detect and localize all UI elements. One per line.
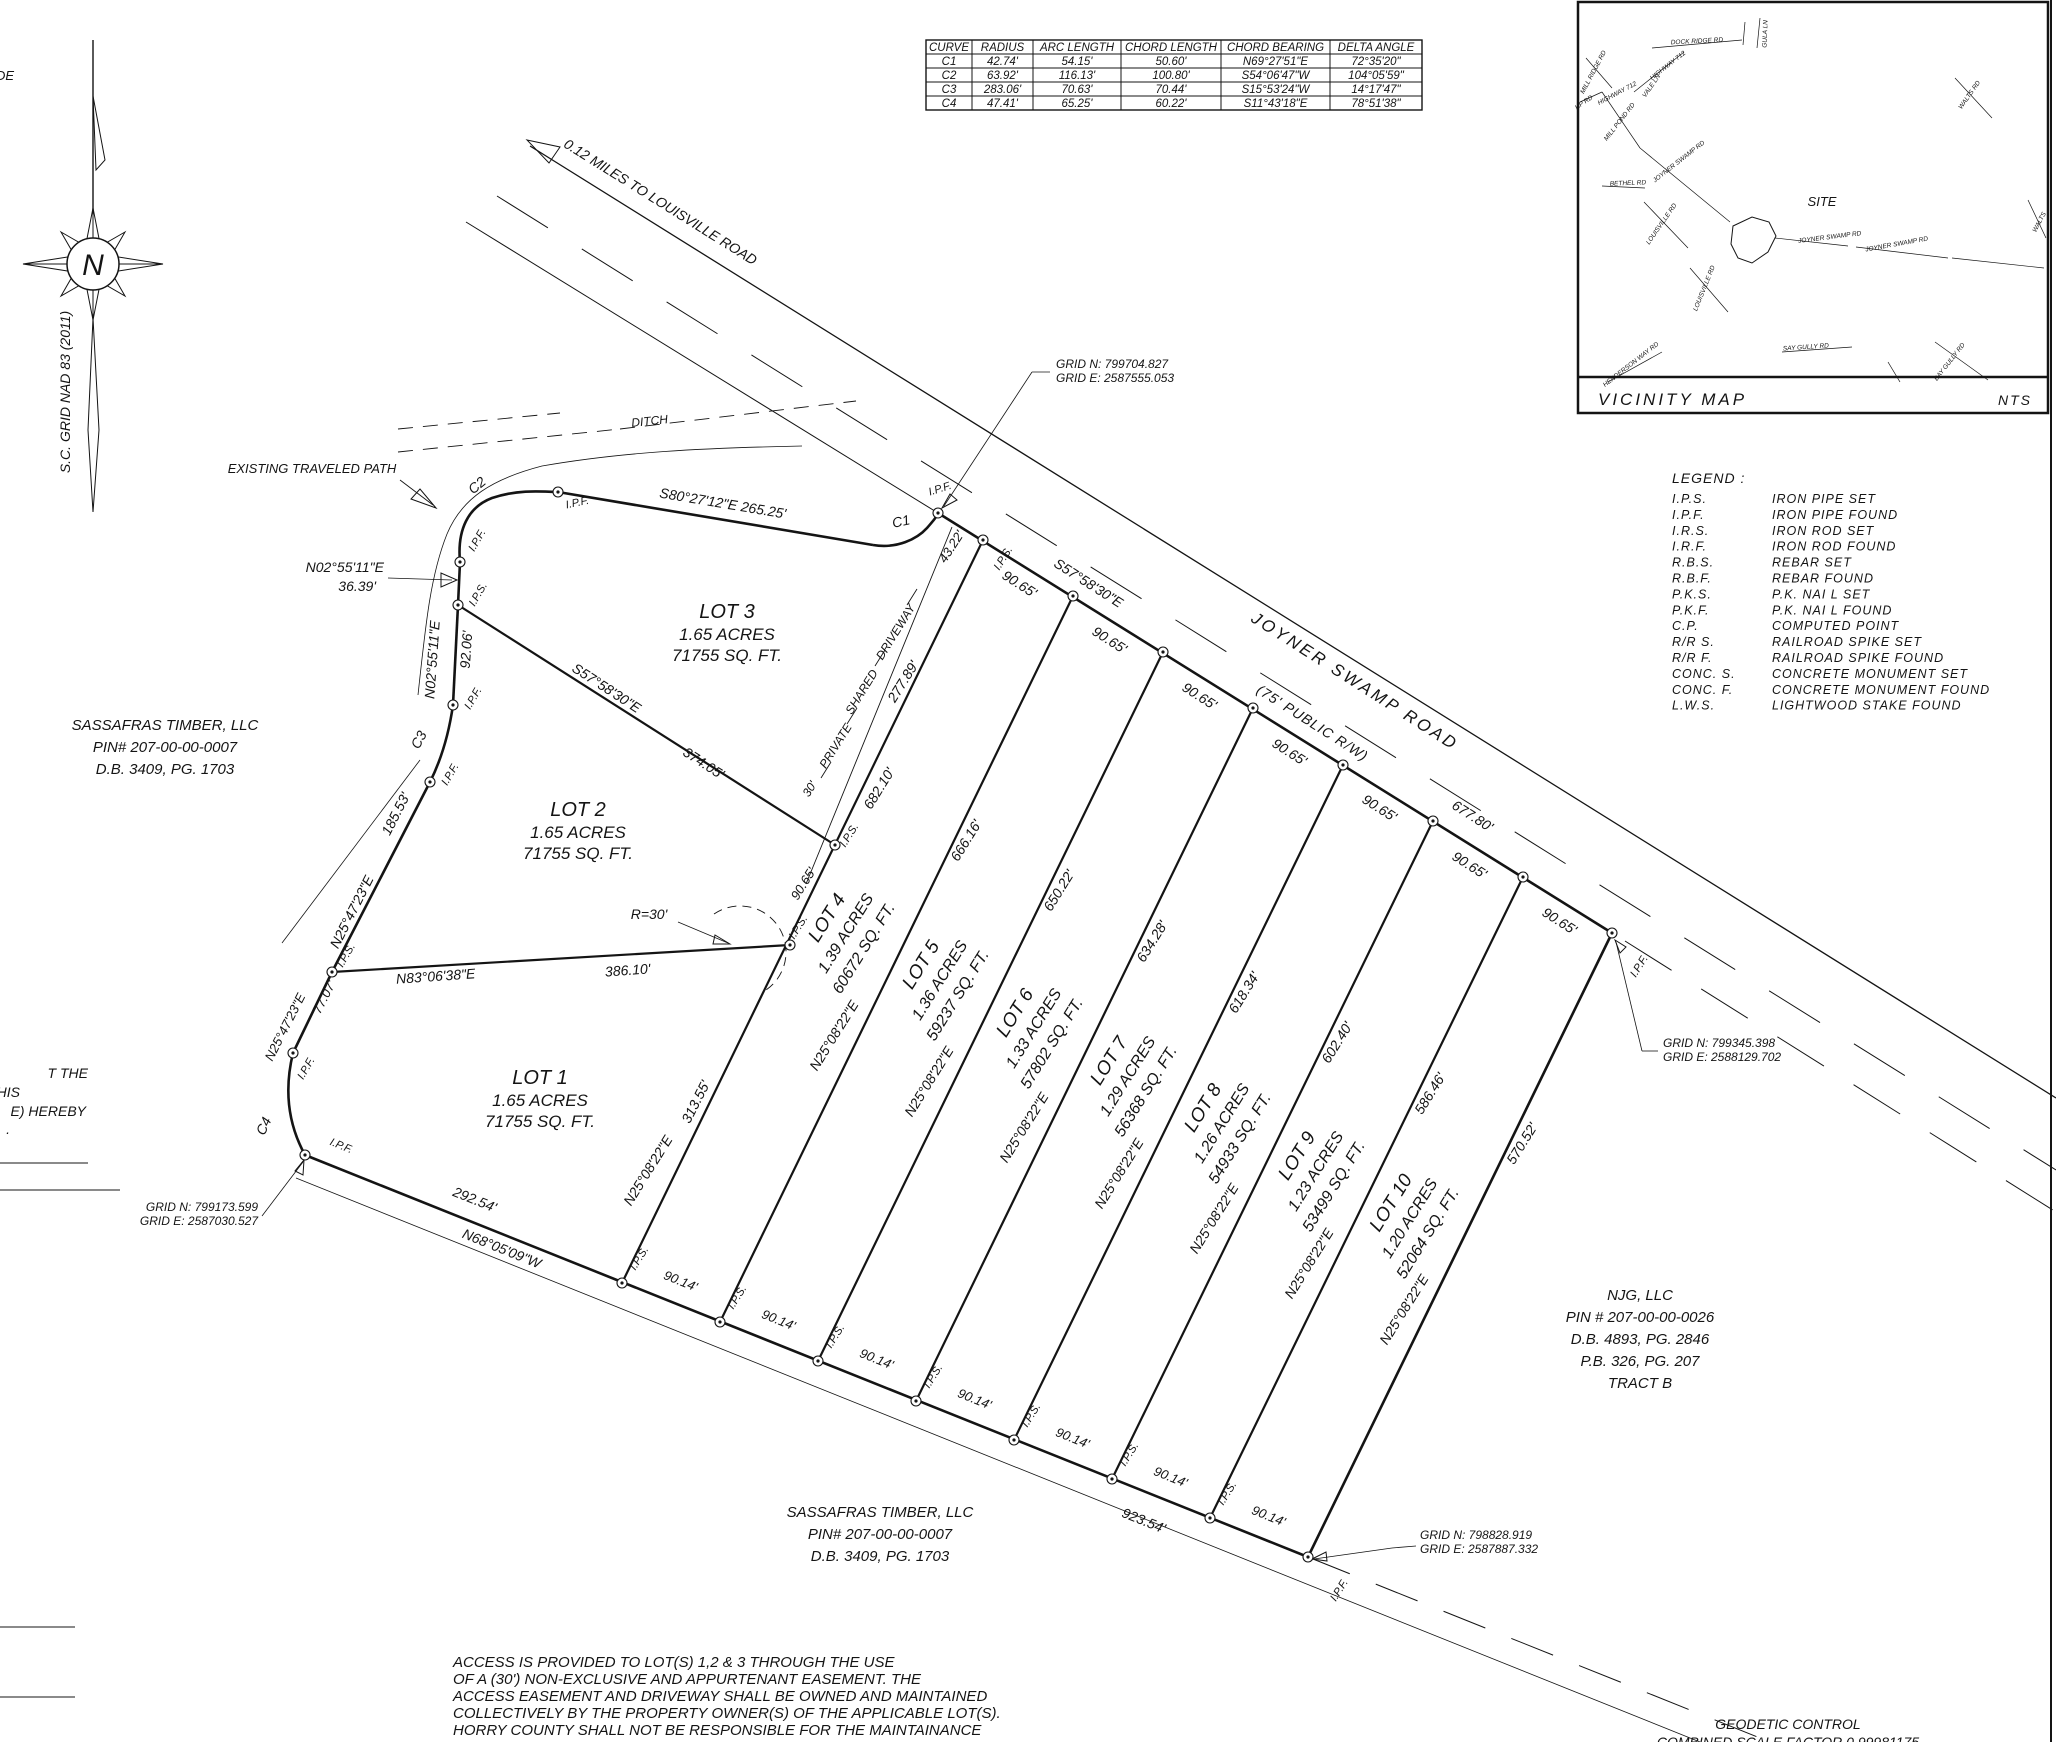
bearing-distance-label: 90.14' <box>1250 1502 1289 1529</box>
monument-marker-dot <box>303 1153 306 1156</box>
curve-table-header: RADIUS <box>981 42 1025 54</box>
bearing-distance-label: C4 <box>252 1114 274 1137</box>
bearing-distance-label: 0.12 MILES TO LOUISVILLE ROAD <box>561 135 760 268</box>
lot-label: 71755 SQ. FT. <box>672 646 782 665</box>
monument-marker-dot <box>330 970 333 973</box>
bearing-distance-label: 313.55' <box>678 1077 714 1126</box>
legend-desc: P.K. NAI L FOUND <box>1772 603 1892 617</box>
bearing-distance-label: C1 <box>891 511 912 530</box>
curve-table-cell: S11°43'18"E <box>1244 98 1308 110</box>
bearing-distance-label: S57°58'30"E <box>1051 555 1126 611</box>
curve-table-cell: C2 <box>942 70 957 82</box>
vicinity-road-label: GULA LN <box>1762 20 1770 48</box>
legend-desc: CONCRETE MONUMENT SET <box>1772 667 1968 681</box>
legend-desc: RAILROAD SPIKE FOUND <box>1772 651 1944 665</box>
plat-line <box>458 562 460 605</box>
grid-coordinate-label: GRID N: 798828.919 <box>1420 1528 1532 1542</box>
curve-table-cell: 14°17'47" <box>1351 84 1401 96</box>
bearing-distance-label: N02°55'11"E <box>306 559 385 575</box>
monument-marker-dot <box>914 1399 917 1402</box>
vicinity-map-title: VICINITY MAP <box>1598 390 1747 409</box>
bearing-distance-label: I.P.F. <box>466 527 488 553</box>
lot-label: LOT 3 <box>699 601 755 623</box>
plat-line <box>1308 1557 1770 1742</box>
legend-abbr: R.B.F. <box>1672 572 1712 586</box>
bearing-distance-label: S57°58'30"E <box>569 660 644 717</box>
legend-abbr: I.R.S. <box>1672 524 1709 538</box>
monument-marker-dot <box>1012 1438 1015 1441</box>
bearing-distance-label: JOYNER SWAMP ROAD <box>1247 608 1462 754</box>
curve-table-cell: 42.74' <box>987 56 1019 68</box>
monument-marker-dot <box>1610 931 1613 934</box>
note-text: HORRY COUNTY SHALL NOT BE RESPONSIBLE FO… <box>453 1722 982 1739</box>
bearing-distance-label: I.P.S. <box>922 1362 946 1390</box>
curve-table-cell: C4 <box>942 98 957 110</box>
bearing-distance-label: N25°08'22"E <box>1091 1135 1147 1211</box>
legend-desc: CONCRETE MONUMENT FOUND <box>1772 683 1990 697</box>
page: { "canvas": {"width": 2056, "height": 17… <box>0 0 2056 1742</box>
bearing-distance-label: I.P.F. <box>1328 1577 1351 1603</box>
note-text: OF A (30') NON-EXCLUSIVE AND APPURTENANT… <box>453 1671 922 1688</box>
plat-line <box>944 372 1032 506</box>
arrowhead <box>1615 940 1626 953</box>
lot-label: LOT 1 <box>512 1067 568 1089</box>
bearing-distance-label: DITCH <box>631 412 669 430</box>
plat-line <box>1210 877 1523 1518</box>
bearing-distance-label: C2 <box>465 473 489 497</box>
bearing-distance-label: 90.14' <box>858 1345 897 1372</box>
clipped-edge-text: HIS <box>0 1084 21 1100</box>
bearing-distance-label: N25°08'22"E <box>1281 1225 1337 1301</box>
monument-marker-dot <box>1521 875 1524 878</box>
bearing-distance-label: 43.22' <box>935 527 967 565</box>
bearing-distance-label: N25°08'22"E <box>1186 1180 1242 1256</box>
note-text: COMBINED SCALE FACTOR 0.99981175 <box>1657 1734 1919 1742</box>
plat-line <box>262 1162 303 1216</box>
arrowhead <box>88 318 99 512</box>
plat-line <box>1112 821 1433 1479</box>
plat-line <box>466 222 938 513</box>
bearing-distance-label: N25°08'22"E <box>1376 1271 1432 1347</box>
bearing-distance-label: 90.14' <box>956 1385 995 1412</box>
grid-coordinate-label: GRID E: 2588129.702 <box>1663 1050 1781 1064</box>
bearing-distance-label: 923.54' <box>1120 1504 1169 1536</box>
bearing-distance-label: I.P.F. <box>295 1055 317 1081</box>
owner-parcel-label: P.B. 326, PG. 207 <box>1581 1353 1701 1370</box>
lot-label: 1.65 ACRES <box>492 1091 588 1110</box>
monument-marker-dot <box>833 843 836 846</box>
owner-parcel-label: D.B. 3409, PG. 1703 <box>96 761 235 778</box>
grid-coordinate-label: GRID N: 799173.599 <box>146 1200 258 1214</box>
curve-table-header: CURVE <box>929 42 969 54</box>
legend-abbr: P.K.S. <box>1672 587 1712 601</box>
plat-line <box>305 1155 1308 1557</box>
bearing-distance-label: I.P.S. <box>1020 1401 1044 1429</box>
bearing-distance-label: I.P.S. <box>838 821 862 849</box>
monument-marker-dot <box>428 780 431 783</box>
legend-desc: P.K. NAI L SET <box>1772 587 1871 601</box>
bearing-distance-label: S80°27'12"E 265.25' <box>658 485 788 522</box>
bearing-distance-label: 77.07' <box>309 977 338 1015</box>
curve-table-cell: 54.15' <box>1062 56 1094 68</box>
legend-desc: COMPUTED POINT <box>1772 619 1900 633</box>
owner-parcel-label: D.B. 4893, PG. 2846 <box>1571 1331 1710 1348</box>
monument-marker-dot <box>788 943 791 946</box>
lot-label: 71755 SQ. FT. <box>485 1112 595 1131</box>
curve-table-cell: 65.25' <box>1062 98 1094 110</box>
bearing-distance-label: N25°08'22"E <box>901 1043 957 1119</box>
curve-table-cell: 50.60' <box>1156 56 1188 68</box>
bearing-distance-label: 36.39' <box>338 578 377 594</box>
bearing-distance-label: I.P.F. <box>328 1136 354 1156</box>
plat-line <box>806 527 952 884</box>
curve-table-cell: C3 <box>942 84 957 96</box>
monument-marker-dot <box>620 1281 623 1284</box>
grid-coordinate-label: GRID E: 2587555.053 <box>1056 371 1174 385</box>
legend-desc: IRON PIPE SET <box>1772 492 1876 506</box>
curve-table-cell: 283.06' <box>983 84 1022 96</box>
curve-table-cell: 104°05'59" <box>1348 70 1405 82</box>
bearing-distance-label: 650.22' <box>1040 866 1078 914</box>
curve-table-cell: 100.80' <box>1152 70 1190 82</box>
curve-table-cell: 60.22' <box>1156 98 1188 110</box>
plat-line <box>1392 1546 1416 1548</box>
curve-table-cell: C1 <box>942 56 957 68</box>
bearing-distance-label: I.P.F. <box>565 495 590 512</box>
bearing-distance-label: 90.14' <box>1152 1463 1191 1490</box>
lot-label: LOT 2 <box>550 799 606 821</box>
vicinity-road-label: BETHEL RD <box>1610 179 1647 187</box>
plat-line <box>907 589 917 605</box>
grid-coordinate-label: GRID N: 799345.398 <box>1663 1036 1775 1050</box>
owner-parcel-label: NJG, LLC <box>1607 1287 1673 1304</box>
bearing-distance-label: I.P.S. <box>824 1322 848 1350</box>
vicinity-map-title: NTS <box>1998 392 2032 408</box>
note-text: ACCESS IS PROVIDED TO LOT(S) 1,2 & 3 THR… <box>452 1654 895 1671</box>
legend-desc: IRON ROD FOUND <box>1772 540 1896 554</box>
bearing-distance-label: 602.40' <box>1318 1018 1356 1066</box>
bearing-distance-label: I.P.S. <box>1118 1440 1142 1468</box>
curve-table-cell: S15°53'24"W <box>1242 84 1311 96</box>
monument-marker-dot <box>291 1051 294 1054</box>
owner-parcel-label: SASSAFRAS TIMBER, LLC <box>787 1504 974 1521</box>
curve-table-cell: 78°51'38" <box>1351 98 1401 110</box>
clipped-edge-text: E) HEREBY <box>11 1103 88 1119</box>
bearing-distance-label: I.P.F. <box>462 685 484 711</box>
curve-table-header: CHORD BEARING <box>1227 42 1324 54</box>
note-text: ACCESS EASEMENT AND DRIVEWAY SHALL BE OW… <box>452 1688 987 1705</box>
legend-title: LEGEND : <box>1672 470 1745 486</box>
plat-line <box>1014 765 1343 1440</box>
north-arrow-label: N <box>82 249 104 282</box>
bearing-distance-label: I.P.F. <box>439 761 461 787</box>
bearing-distance-label: 618.34' <box>1225 968 1263 1016</box>
curve-table-header: CHORD LENGTH <box>1125 42 1218 54</box>
legend-abbr: CONC. F. <box>1672 683 1733 697</box>
owner-parcel-label: PIN# 207-00-00-0007 <box>93 739 238 756</box>
bearing-distance-label: 374.05' <box>680 744 728 783</box>
monument-marker-dot <box>456 603 459 606</box>
bearing-distance-label: I.P.S. <box>726 1283 750 1311</box>
bearing-distance-label: 666.16' <box>947 816 985 864</box>
monument-marker-dot <box>1431 819 1434 822</box>
bearing-distance-label: I.P.F. <box>1628 953 1651 979</box>
bearing-distance-label: 677.80' <box>1449 797 1497 836</box>
plat-canvas: 0.12 MILES TO LOUISVILLE ROADDITCHJOYNER… <box>0 0 2056 1742</box>
owner-parcel-label: PIN # 207-00-00-0026 <box>1566 1309 1715 1326</box>
legend-desc: RAILROAD SPIKE SET <box>1772 635 1922 649</box>
monument-marker-dot <box>816 1359 819 1362</box>
plat-line <box>678 922 728 943</box>
monument-marker-dot <box>1341 763 1344 766</box>
legend-desc: IRON PIPE FOUND <box>1772 508 1898 522</box>
plat-line <box>938 513 1612 933</box>
legend-abbr: I.P.F. <box>1672 508 1705 522</box>
plat-line <box>1625 941 2056 1212</box>
plat-line <box>332 945 790 972</box>
bearing-distance-label: 92.06' <box>457 629 476 669</box>
curve-table-cell: S54°06'47"W <box>1242 70 1311 82</box>
legend-abbr: R.B.S. <box>1672 556 1714 570</box>
grid-coordinate-label: GRID N: 799704.827 <box>1056 357 1169 371</box>
bearing-distance-label: C3 <box>407 728 430 752</box>
clipped-edge-text: . <box>6 1121 10 1137</box>
bearing-distance-label: 386.10' <box>604 960 652 979</box>
bearing-distance-label: 90.65' <box>1359 791 1401 825</box>
monument-marker-dot <box>1306 1555 1309 1558</box>
bearing-distance-label: N25°47'23"E <box>262 990 309 1063</box>
lot-label: 71755 SQ. FT. <box>523 844 633 863</box>
legend-abbr: C.P. <box>1672 619 1699 633</box>
monument-marker-dot <box>1251 706 1254 709</box>
curve-table-cell: 70.44' <box>1156 84 1188 96</box>
legend-abbr: R/R S. <box>1672 635 1715 649</box>
curve-table-cell: 116.13' <box>1059 70 1096 82</box>
monument-marker-dot <box>1071 594 1074 597</box>
owner-parcel-label: TRACT B <box>1608 1375 1672 1392</box>
plat-line <box>398 429 620 452</box>
curve-table-cell: N69°27'51"E <box>1243 56 1309 68</box>
plat-line <box>388 578 452 580</box>
bearing-distance-label: I.P.S. <box>467 580 490 608</box>
bearing-distance-label: N25°08'22"E <box>620 1132 676 1208</box>
note-text: GEODETIC CONTROL <box>1715 1716 1860 1732</box>
note-text: COLLECTIVELY BY THE PROPERTY OWNER(S) OF… <box>453 1705 1001 1722</box>
curve-table-cell: 70.63' <box>1062 84 1094 96</box>
legend-desc: REBAR FOUND <box>1772 572 1874 586</box>
bearing-distance-label: 682.10' <box>860 764 898 812</box>
owner-parcel-label: PIN# 207-00-00-0007 <box>808 1526 953 1543</box>
owner-parcel-label: D.B. 3409, PG. 1703 <box>811 1548 950 1565</box>
bearing-distance-label: 90.14' <box>662 1267 701 1294</box>
lot-label: 1.65 ACRES <box>679 625 775 644</box>
curve-table-cell: 47.41' <box>987 98 1019 110</box>
bearing-distance-label: PRIVATE <box>816 720 855 770</box>
monument-marker-dot <box>451 703 454 706</box>
bearing-distance-label: I.P.S. <box>1216 1479 1240 1507</box>
grid-coordinate-label: GRID E: 2587030.527 <box>140 1214 259 1228</box>
bearing-distance-label: N25°08'22"E <box>806 997 862 1073</box>
bearing-distance-label: 90.14' <box>760 1306 799 1333</box>
bearing-distance-label: R=30' <box>631 906 669 922</box>
clipped-edge-text: DE <box>0 68 14 83</box>
bearing-distance-label: EXISTING TRAVELED PATH <box>228 461 397 476</box>
legend-abbr: P.K.F. <box>1672 603 1710 617</box>
arrowhead <box>527 140 560 163</box>
bearing-distance-label: 90.65' <box>788 864 820 902</box>
bearing-distance-label: (75' PUBLIC R/W) <box>1254 681 1372 764</box>
curve-table-cell: 63.92' <box>987 70 1019 82</box>
monument-marker-dot <box>556 490 559 493</box>
legend-abbr: CONC. S. <box>1672 667 1736 681</box>
legend-desc: LIGHTWOOD STAKE FOUND <box>1772 699 1962 713</box>
bearing-distance-label: 30' <box>800 778 821 799</box>
arrowhead <box>1312 1552 1327 1561</box>
bearing-distance-label: N25°08'22"E <box>996 1089 1052 1165</box>
owner-parcel-label: SASSAFRAS TIMBER, LLC <box>72 717 259 734</box>
arrowhead <box>295 1160 304 1175</box>
monument-marker-dot <box>981 538 984 541</box>
monument-marker-dot <box>1161 650 1164 653</box>
north-arrow-label: S.C. GRID NAD 83 (2011) <box>57 311 73 473</box>
monument-marker-dot <box>936 511 939 514</box>
plat-line <box>398 413 560 429</box>
vicinity-site-label: SITE <box>1808 194 1837 209</box>
legend-desc: IRON ROD SET <box>1772 524 1875 538</box>
arrowhead <box>93 96 105 170</box>
bearing-distance-label: 90.14' <box>1054 1424 1093 1451</box>
bearing-distance-label: 185.53' <box>378 789 414 838</box>
arrowhead <box>713 935 730 944</box>
monument-marker-dot <box>1208 1516 1211 1519</box>
bearing-distance-label: N25°47'23"E <box>326 872 377 951</box>
plat-line <box>818 652 1163 1361</box>
grid-coordinate-label: GRID E: 2587887.332 <box>1420 1542 1538 1556</box>
survey-plat-sheet: 0.12 MILES TO LOUISVILLE ROADDITCHJOYNER… <box>0 0 2056 1742</box>
bearing-distance-label: N02°55'11"E <box>421 619 442 699</box>
legend-desc: REBAR SET <box>1772 556 1852 570</box>
plat-line <box>458 605 835 845</box>
monument-marker-dot <box>1110 1477 1113 1480</box>
curve-table-cell: 72°35'20" <box>1351 56 1401 68</box>
legend-abbr: R/R F. <box>1672 651 1713 665</box>
lot-label: 1.65 ACRES <box>530 823 626 842</box>
bearing-distance-label: 292.54' <box>450 1183 500 1216</box>
bearing-distance-label: I.P.S. <box>628 1244 652 1272</box>
clipped-edge-text: T THE <box>48 1065 89 1081</box>
legend-abbr: L.W.S. <box>1672 699 1715 713</box>
legend-abbr: I.R.F. <box>1672 540 1707 554</box>
curve-table-header: ARC LENGTH <box>1039 42 1115 54</box>
arrowhead <box>411 489 436 508</box>
monument-marker-dot <box>458 560 461 563</box>
legend-abbr: I.P.S. <box>1672 492 1707 506</box>
monument-marker-dot <box>718 1320 721 1323</box>
bearing-distance-label: SHARED <box>842 667 881 717</box>
curve-table-header: DELTA ANGLE <box>1338 42 1415 54</box>
bearing-distance-label: DRIVEWAY <box>873 601 919 663</box>
